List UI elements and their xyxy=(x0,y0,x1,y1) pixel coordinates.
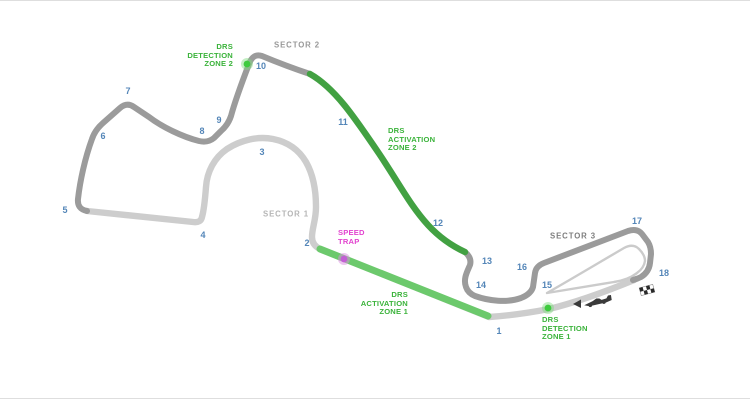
circuit-map-svg xyxy=(0,0,750,400)
speed-trap-label: SPEED TRAP xyxy=(338,229,365,246)
sector-1-label: SECTOR 1 xyxy=(263,210,309,219)
turn-label-1: 1 xyxy=(496,326,501,336)
turn-label-15: 15 xyxy=(542,280,552,290)
speed-trap-dot xyxy=(338,253,350,265)
turn-label-13: 13 xyxy=(482,256,492,266)
turn-label-9: 9 xyxy=(216,115,221,125)
turn-label-6: 6 xyxy=(100,131,105,141)
pit-lane-path xyxy=(547,246,645,293)
turn-label-7: 7 xyxy=(125,86,130,96)
drs-detection-zone-2-label: DRS DETECTION ZONE 2 xyxy=(187,43,233,69)
turn-label-2: 2 xyxy=(304,238,309,248)
track-sector2-path xyxy=(78,55,310,211)
turn-label-17: 17 xyxy=(632,216,642,226)
drs-detection-dot-1 xyxy=(542,302,554,314)
drs-activation-zone-2-label: DRS ACTIVATION ZONE 2 xyxy=(388,127,435,153)
turn-label-10: 10 xyxy=(256,61,266,71)
checkered-flag-icon xyxy=(639,284,655,295)
turn-label-5: 5 xyxy=(62,205,67,215)
turn-label-18: 18 xyxy=(659,268,669,278)
drs-detection-zone-1-label: DRS DETECTION ZONE 1 xyxy=(542,316,588,342)
turn-label-12: 12 xyxy=(433,218,443,228)
turn-label-11: 11 xyxy=(338,117,348,127)
sector-2-label: SECTOR 2 xyxy=(274,41,320,50)
sector-3-label: SECTOR 3 xyxy=(550,232,596,241)
turn-label-4: 4 xyxy=(200,230,205,240)
turn-label-14: 14 xyxy=(476,280,486,290)
turn-label-16: 16 xyxy=(517,262,527,272)
drs-activation-zone-1-label: DRS ACTIVATION ZONE 1 xyxy=(361,291,408,317)
turn-label-8: 8 xyxy=(199,126,204,136)
turn-label-3: 3 xyxy=(259,147,264,157)
drs-detection-dot-2 xyxy=(241,58,253,70)
